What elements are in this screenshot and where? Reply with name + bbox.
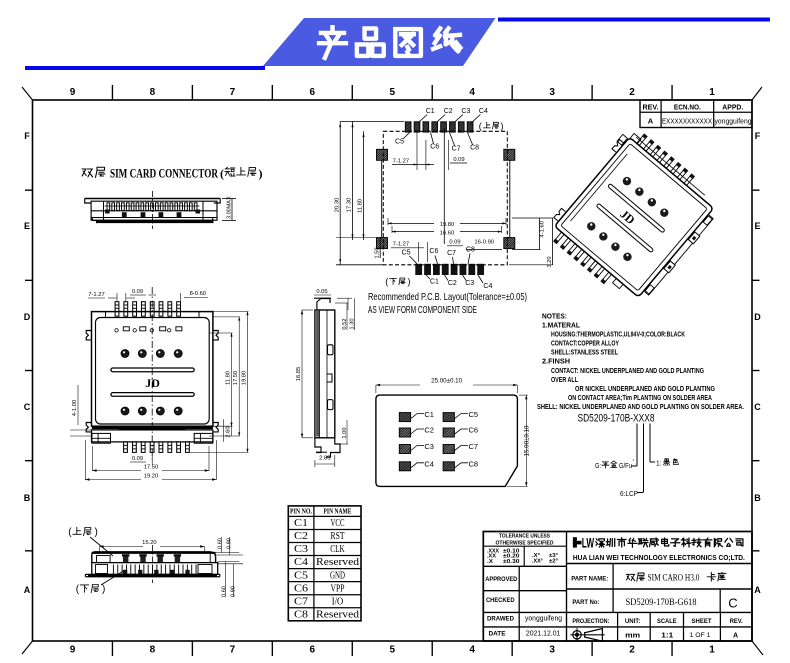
svg-text:2.85: 2.85: [319, 456, 330, 462]
svg-text:C2: C2: [444, 108, 453, 115]
svg-text:11.80: 11.80: [226, 371, 232, 385]
svg-text:C6: C6: [469, 426, 479, 435]
svg-text:REV.: REV.: [643, 105, 659, 112]
svg-text:C4: C4: [424, 459, 434, 468]
svg-text:5: 5: [389, 645, 395, 656]
svg-text:1: 1: [709, 87, 715, 98]
svg-text:1.50: 1.50: [374, 247, 380, 258]
svg-text:7-1.27: 7-1.27: [393, 159, 409, 165]
svg-text:.X: .X: [487, 559, 493, 565]
svg-text:C7: C7: [294, 595, 309, 607]
svg-text:OVER ALL: OVER ALL: [551, 375, 578, 384]
svg-text:C1: C1: [430, 279, 439, 286]
svg-text:CLK: CLK: [330, 543, 345, 555]
svg-text:HUA LIAN WEI TECHNOLOGY ELECTR: HUA LIAN WEI TECHNOLOGY ELECTRONICS CO;L…: [573, 553, 745, 562]
svg-text:1:1: 1:1: [661, 632, 673, 639]
svg-text:C2: C2: [294, 530, 308, 542]
svg-text:PIN NO.: PIN NO.: [290, 506, 312, 515]
svg-text:PART NAME:: PART NAME:: [571, 575, 608, 582]
svg-text:B: B: [24, 493, 31, 503]
svg-text:6: 6: [310, 645, 316, 656]
svg-text:0.09: 0.09: [132, 456, 143, 462]
svg-text:A: A: [24, 585, 31, 595]
svg-text:yongguifeng: yongguifeng: [715, 119, 752, 126]
svg-text:0.09: 0.09: [449, 240, 460, 246]
svg-text:SD5209-170B-XXX8: SD5209-170B-XXX8: [578, 413, 655, 425]
svg-text:C3: C3: [465, 280, 474, 287]
svg-text:SIM CARO H3.0: SIM CARO H3.0: [648, 574, 700, 584]
svg-text:ECN.NO.: ECN.NO.: [674, 105, 701, 112]
svg-text:C6: C6: [430, 144, 439, 151]
svg-text:F: F: [24, 131, 30, 141]
svg-text:8: 8: [150, 645, 156, 656]
svg-text:APPD.: APPD.: [722, 105, 743, 112]
svg-text:C4: C4: [479, 108, 488, 115]
svg-text:(: (: [220, 167, 224, 181]
svg-text:17.30: 17.30: [347, 198, 353, 213]
svg-text:0.60: 0.60: [218, 538, 224, 549]
svg-text:17.50: 17.50: [233, 371, 239, 386]
svg-text:C8: C8: [294, 608, 309, 620]
svg-text:Reserved: Reserved: [316, 608, 360, 620]
svg-text:6: 6: [310, 87, 316, 98]
svg-text:16-0.90: 16-0.90: [474, 239, 494, 245]
svg-text:OR NICKEL UNDERPLANED AND GOLD: OR NICKEL UNDERPLANED AND GOLD PLANTING: [575, 384, 715, 393]
svg-text:DATE: DATE: [489, 630, 506, 637]
svg-text:GND: GND: [330, 569, 345, 581]
svg-text:C2: C2: [424, 426, 434, 435]
svg-text:17.50: 17.50: [144, 464, 159, 470]
svg-text:3: 3: [549, 645, 555, 656]
svg-text:1.30: 1.30: [350, 318, 356, 329]
svg-text:C7: C7: [469, 442, 479, 451]
svg-text:3.00MAX: 3.00MAX: [227, 196, 233, 219]
svg-text:3.20: 3.20: [547, 256, 553, 267]
svg-text:UNIT:: UNIT:: [625, 618, 641, 625]
svg-text:5: 5: [389, 87, 395, 98]
svg-text:4-1.60: 4-1.60: [540, 221, 546, 237]
svg-text:3: 3: [549, 87, 555, 98]
svg-text:F: F: [755, 131, 761, 141]
svg-text:TOLERANCE UNLESS: TOLERANCE UNLESS: [499, 534, 550, 540]
svg-text:CONTACT:COPPER ALLOY: CONTACT:COPPER ALLOY: [551, 339, 619, 348]
svg-text:G/Fu: G/Fu: [619, 463, 632, 470]
svg-text:C7: C7: [452, 146, 461, 153]
svg-text:C1: C1: [426, 108, 435, 115]
svg-text:7-1.27: 7-1.27: [393, 242, 409, 248]
svg-text:A: A: [733, 632, 738, 639]
svg-text:LW: LW: [582, 535, 595, 551]
svg-text:15.20: 15.20: [142, 540, 157, 546]
svg-text:C: C: [24, 402, 31, 412]
svg-text:2.60: 2.60: [226, 426, 232, 437]
svg-text:SHELL:STANLESS STEEL: SHELL:STANLESS STEEL: [551, 348, 618, 357]
svg-text:19.80: 19.80: [440, 222, 455, 228]
svg-text:): ): [259, 167, 263, 181]
svg-text:A: A: [754, 585, 761, 595]
svg-text:REV.: REV.: [730, 618, 743, 625]
svg-text:2.FINSH: 2.FINSH: [542, 357, 570, 366]
svg-text:6:LCP: 6:LCP: [620, 489, 638, 498]
svg-text:C: C: [754, 402, 761, 412]
svg-text:APPROVED: APPROVED: [485, 576, 517, 583]
svg-text:8-0.60: 8-0.60: [190, 291, 206, 297]
svg-text:±2°: ±2°: [549, 558, 559, 564]
svg-text:1:: 1:: [656, 461, 662, 468]
svg-text:4: 4: [469, 645, 475, 656]
svg-text:C8: C8: [470, 145, 479, 152]
svg-text:4-1.00: 4-1.00: [72, 400, 78, 416]
svg-text:): ): [102, 584, 105, 595]
svg-text:PIN NAME: PIN NAME: [324, 506, 352, 515]
svg-text:SHEET: SHEET: [692, 618, 712, 625]
svg-text:11.80: 11.80: [358, 199, 364, 213]
svg-text:G:: G:: [595, 463, 601, 470]
svg-text:(: (: [385, 277, 388, 287]
svg-text:1.MATERAL: 1.MATERAL: [542, 321, 581, 330]
svg-text:19.80: 19.80: [242, 371, 248, 386]
svg-text:0.05: 0.05: [316, 289, 327, 295]
svg-text:D: D: [24, 312, 31, 322]
svg-text:JD: JD: [145, 376, 160, 390]
svg-text:C6: C6: [294, 582, 309, 594]
svg-text:DRAWED: DRAWED: [487, 616, 514, 623]
svg-text:OTHERWISE SPECIFIED: OTHERWISE SPECIFIED: [496, 541, 554, 547]
svg-text:SD5209-170B-G618: SD5209-170B-G618: [626, 597, 697, 608]
svg-text:CONTACT: NICKEL UNDERPLANED AN: CONTACT: NICKEL UNDERPLANED AND GOLD PLA…: [551, 366, 704, 375]
svg-text:C6: C6: [429, 248, 438, 255]
svg-text:yongguifeng: yongguifeng: [525, 616, 562, 623]
svg-text:): ): [501, 121, 504, 131]
svg-text:RST: RST: [331, 530, 345, 542]
svg-text:VCC: VCC: [331, 517, 345, 529]
svg-text:19.20: 19.20: [144, 473, 159, 479]
svg-text:I/O: I/O: [332, 595, 344, 607]
svg-text:20.30: 20.30: [335, 198, 341, 213]
svg-text:SHELL: NICKEL UNDERPLANED AND: SHELL: NICKEL UNDERPLANED AND GOLD PLANT…: [537, 402, 744, 411]
svg-text:C3: C3: [294, 543, 309, 555]
svg-text:SCALE: SCALE: [657, 618, 677, 625]
svg-text:C3: C3: [461, 108, 470, 115]
svg-text:E: E: [754, 221, 760, 231]
svg-text:C4: C4: [294, 556, 309, 568]
svg-text:C: C: [728, 596, 737, 611]
svg-text:Reserved: Reserved: [316, 556, 360, 568]
svg-text:C1: C1: [294, 517, 308, 529]
svg-text:PROJECTION:: PROJECTION:: [572, 618, 609, 625]
svg-text:7: 7: [230, 87, 236, 98]
svg-text:(: (: [479, 121, 482, 131]
svg-text:7-1.27: 7-1.27: [88, 292, 104, 298]
svg-text:C5: C5: [395, 139, 404, 146]
svg-text:C7: C7: [447, 250, 456, 257]
svg-text:16.60: 16.60: [440, 230, 455, 236]
svg-text:8: 8: [150, 87, 156, 98]
svg-text:7: 7: [230, 645, 236, 656]
svg-text:2: 2: [629, 645, 635, 656]
svg-text:2021.12.01: 2021.12.01: [526, 629, 561, 638]
svg-text:C4: C4: [483, 283, 492, 290]
svg-text:25.00±0.10: 25.00±0.10: [431, 377, 462, 384]
svg-text:VPP: VPP: [331, 582, 345, 594]
svg-text:9: 9: [70, 87, 76, 98]
svg-text:SIM CARD CONNECTOR: SIM CARD CONNECTOR: [110, 166, 218, 181]
svg-text:4: 4: [469, 87, 475, 98]
svg-text:Recommended P.C.B. Layout(Tole: Recommended P.C.B. Layout(Tolerance=±0.0…: [368, 291, 527, 303]
svg-text:0.60: 0.60: [221, 586, 227, 597]
svg-text:D: D: [754, 312, 761, 322]
svg-text:1 OF 1: 1 OF 1: [690, 632, 711, 639]
svg-text:': ': [633, 459, 634, 466]
svg-text:E: E: [24, 221, 30, 231]
svg-text:AS VIEW FORM COMPONENT SIDE: AS VIEW FORM COMPONENT SIDE: [368, 304, 477, 316]
svg-text:HOUSING:THERMOPLASTIC,UL94V-0;: HOUSING:THERMOPLASTIC,UL94V-0;COLOR:BLAC…: [551, 330, 686, 339]
svg-text:0.52: 0.52: [342, 318, 348, 329]
svg-text:.XX°: .XX°: [532, 558, 544, 564]
svg-text:A: A: [648, 117, 654, 126]
svg-text:B: B: [754, 493, 761, 503]
svg-text:C5: C5: [402, 250, 411, 257]
svg-text:2: 2: [629, 87, 635, 98]
svg-text:±0.30: ±0.30: [503, 559, 520, 565]
svg-text:C8: C8: [466, 247, 475, 254]
svg-text:C3: C3: [424, 442, 434, 451]
svg-text:mm: mm: [625, 632, 640, 639]
svg-text:C5: C5: [469, 410, 479, 419]
svg-text:NOTES:: NOTES:: [542, 312, 567, 321]
svg-text:CHECKED: CHECKED: [486, 597, 515, 604]
svg-text:EXXXXXXXXXXX: EXXXXXXXXXXX: [662, 119, 712, 126]
svg-text:16.85: 16.85: [296, 367, 302, 382]
svg-text:C5: C5: [294, 569, 309, 581]
svg-text:C1: C1: [424, 410, 434, 419]
svg-text:C2: C2: [448, 280, 457, 287]
svg-text:ON CONTACT AREA;Tim PLANTING O: ON CONTACT AREA;Tim PLANTING ON SOLDER A…: [568, 393, 712, 402]
svg-text:15.00±0.10: 15.00±0.10: [524, 425, 531, 456]
svg-text:1.00: 1.00: [342, 427, 348, 438]
svg-text:C8: C8: [469, 459, 479, 468]
svg-text:0.09: 0.09: [132, 289, 143, 295]
svg-text:): ): [408, 277, 411, 287]
svg-text:0.09: 0.09: [453, 157, 464, 163]
svg-text:): ): [95, 527, 98, 538]
svg-text:1: 1: [709, 645, 715, 656]
svg-text:PART No:: PART No:: [572, 599, 599, 606]
svg-text:9: 9: [70, 645, 76, 656]
